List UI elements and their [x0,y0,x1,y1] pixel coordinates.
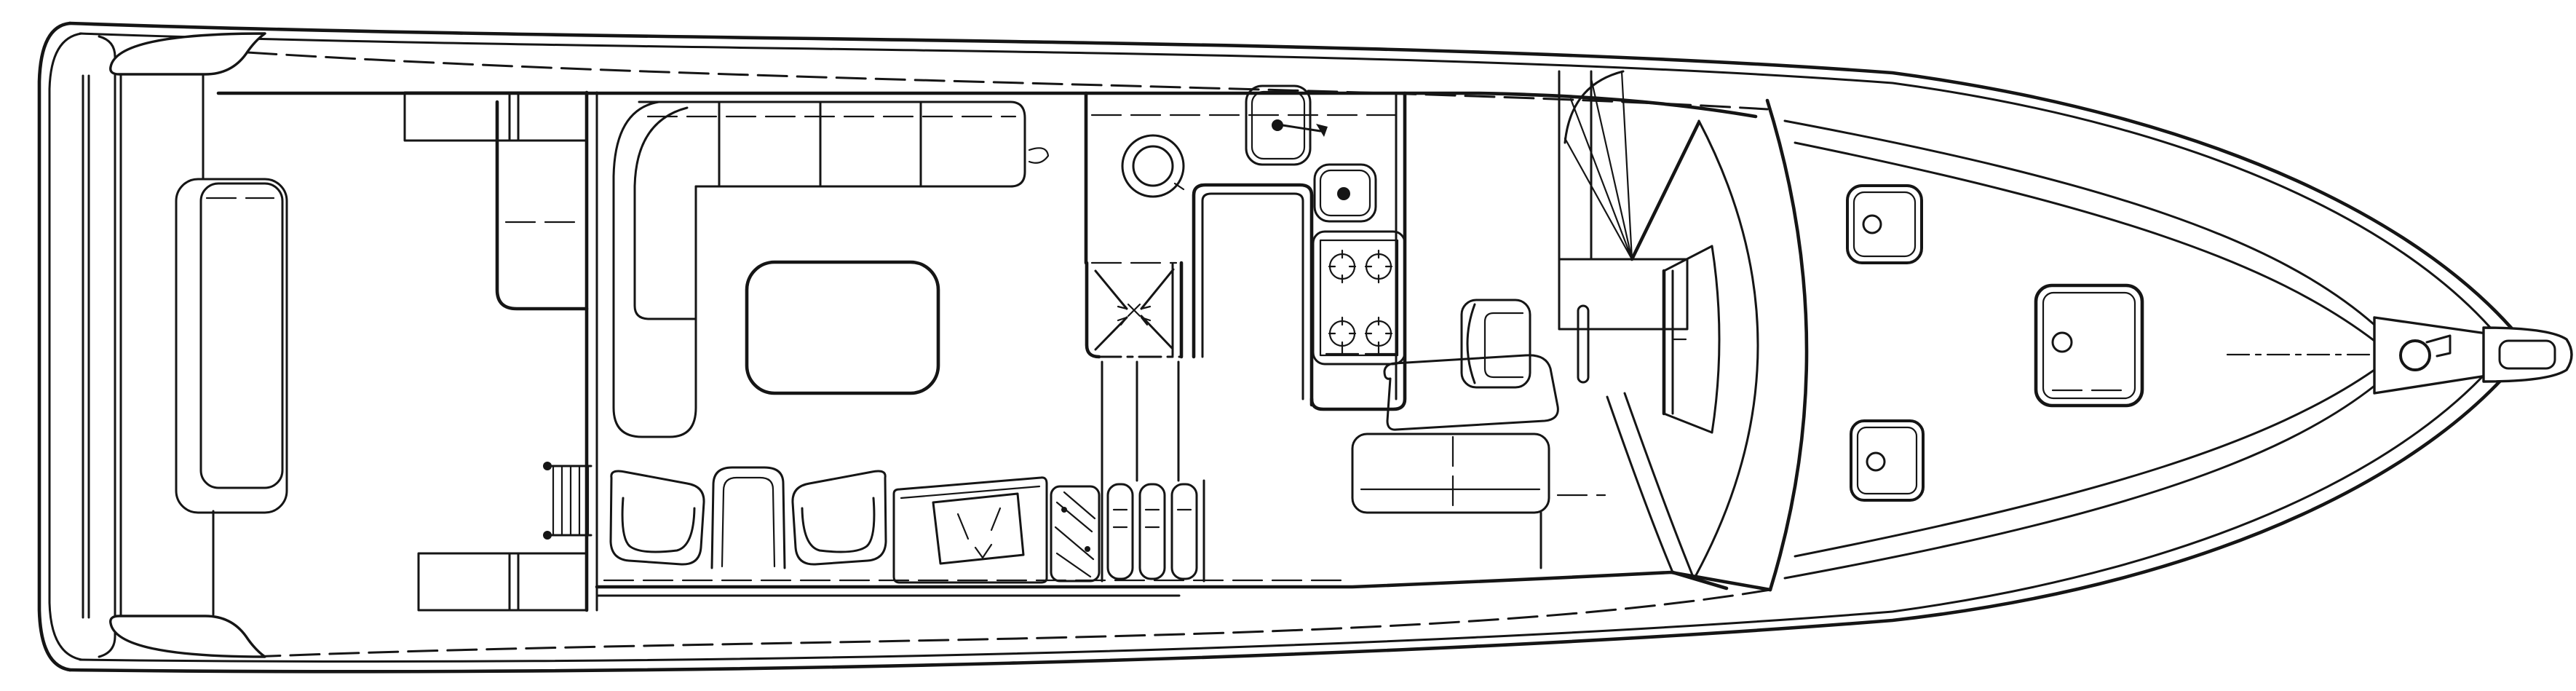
salon [611,102,1204,583]
armchair-left [611,471,704,564]
windshield [1696,100,1807,590]
deck-hatch-port [1847,186,1922,263]
armchair-right [793,471,886,564]
round-sink [1122,135,1184,197]
anchor-windlass [2374,317,2486,393]
helm-console [1664,246,1719,433]
sofa-end-curl [1029,148,1048,162]
aft-deck [176,92,597,610]
galley-sink-forward [1246,86,1328,165]
helm-seat [1462,300,1530,387]
galley-sink-aft [1315,165,1376,221]
flybridge-ladder [543,462,591,540]
foredeck [1785,121,2574,578]
chaise-outer [614,102,696,437]
hull-outline [70,23,2530,671]
swim-platform-transom [39,23,121,670]
yacht-deck-plan [0,0,2576,691]
coffee-table [747,262,938,393]
side-locker-starboard [419,553,587,610]
side-deck-lines [218,52,1770,657]
stairs-fan [1559,71,1699,329]
dinette-back-cushion [1384,355,1558,430]
side-deck-steps [1607,393,1727,588]
bar-cabinet [1051,486,1099,581]
handrail [1578,306,1588,382]
chaise-inner [635,108,696,319]
aft-bench-outer [176,179,287,513]
dinette-seat [1352,434,1549,513]
l-sofa [614,102,1048,437]
bow-pulpit [2484,328,2572,382]
companionway-steps [1102,362,1204,581]
dumbwaiter-box [1087,263,1181,357]
galley [1086,86,1405,409]
end-table [712,467,785,568]
tv-screen [933,494,1023,564]
walkway-line-starboard [251,590,1770,657]
cabin-side-port [218,93,1756,117]
cockpit-corner-caps [111,33,265,657]
tv-cabinet [894,478,1047,583]
walkway-line-port [247,52,1767,109]
deck-hatch-center [2036,285,2142,406]
deck-hatch-starboard [1851,421,1923,500]
pilothouse [1352,71,1727,588]
aft-bench-seat [201,183,282,488]
deck-plan-canvas [0,0,2576,691]
four-burner-cooktop [1313,232,1405,364]
